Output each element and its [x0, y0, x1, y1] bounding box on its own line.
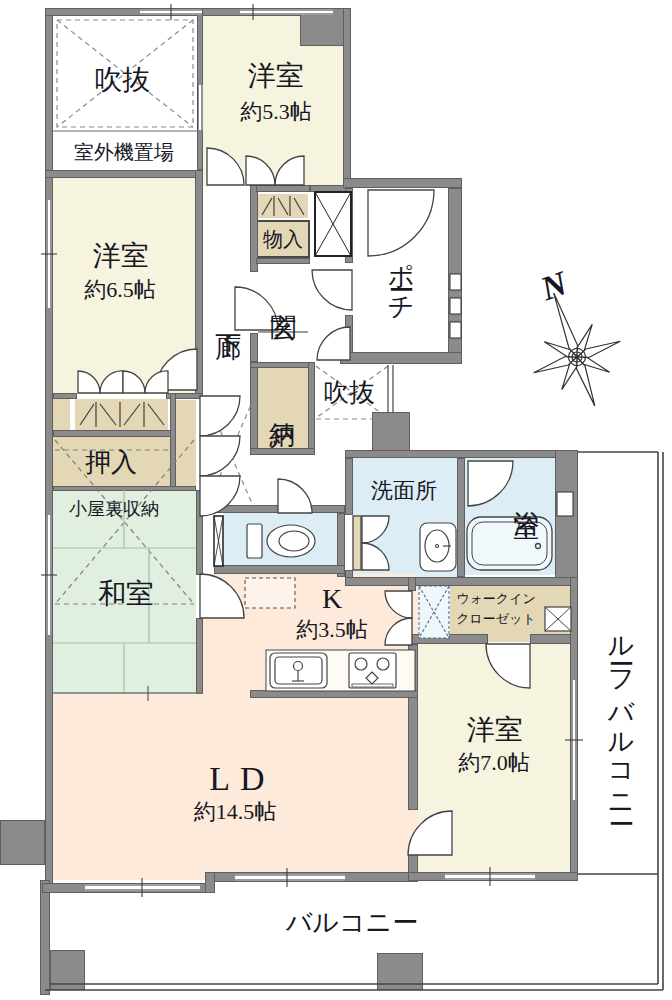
room-toilet	[223, 513, 337, 565]
room-size-western-5-3: 約5.3帖	[240, 100, 312, 123]
compass-north-label: N	[536, 265, 571, 307]
wall-pillar	[50, 950, 85, 990]
compass-icon	[506, 276, 643, 424]
wall	[197, 8, 203, 170]
floor-plan: 吹抜 室外機置場 洋室 約5.3帖 洋室 約6.5帖 廊下 物入 玄関 ポーチ …	[0, 0, 672, 1000]
room-storeroom-nando	[258, 368, 308, 448]
wall-pillar	[372, 412, 410, 452]
wall	[448, 188, 462, 362]
wall	[343, 8, 351, 188]
laundry-space-icon	[419, 586, 449, 638]
room-size-kitchen: 約3.5帖	[296, 618, 368, 641]
wall	[408, 577, 416, 591]
room-size-living-dining: 約14.5帖	[194, 800, 277, 823]
wall	[42, 883, 210, 893]
room-bathroom	[465, 458, 555, 575]
wall	[345, 458, 353, 515]
wall	[340, 352, 462, 364]
wall	[170, 393, 176, 487]
wall	[343, 178, 462, 188]
room-label-corridor: 廊下	[214, 312, 241, 316]
room-label-wic-line2: クローゼット	[456, 612, 536, 626]
wall	[45, 170, 200, 178]
wall	[205, 872, 418, 882]
room-washroom	[353, 458, 457, 577]
wall	[555, 450, 578, 585]
closet-box-small	[53, 398, 70, 430]
room-label-western-6-5: 洋室	[93, 241, 149, 270]
wall	[196, 490, 203, 575]
wall	[345, 577, 578, 586]
wall	[256, 258, 310, 264]
room-label-japanese: 和室	[98, 579, 154, 608]
room-label-western-7-0: 洋室	[467, 715, 523, 744]
room-label-void-mid: 吹抜	[323, 379, 375, 406]
wall-pillar	[377, 953, 423, 990]
wall	[195, 170, 203, 395]
closet-hatch-strip	[75, 399, 168, 430]
wall	[250, 362, 315, 368]
wall	[570, 577, 578, 880]
room-label-roof-balcony: ルーフバルコニー	[607, 618, 634, 812]
room-label-bathroom: 浴室	[512, 490, 539, 494]
wall	[308, 362, 315, 452]
wall	[205, 872, 215, 893]
wall	[53, 430, 175, 437]
wall	[214, 565, 345, 574]
room-label-wic-line1: ウォークイン	[456, 592, 536, 606]
closet-strip-right	[176, 400, 196, 488]
closet-hatch-top	[258, 194, 308, 218]
wall	[250, 333, 258, 362]
wall-pillar	[0, 820, 45, 865]
room-label-washroom: 洗面所	[371, 479, 437, 502]
room-label-entrance: 玄関	[269, 293, 296, 297]
room-label-oshiire: 押入	[85, 449, 137, 476]
wall	[408, 644, 418, 810]
wall	[345, 188, 353, 263]
wall	[250, 362, 258, 452]
wall	[53, 393, 77, 399]
room-label-porch: ポーチ	[387, 244, 414, 309]
wall	[457, 458, 465, 577]
wall	[250, 448, 315, 455]
wall	[408, 634, 488, 644]
room-label-living-dining: LD	[199, 761, 274, 797]
room-label-storeroom: 納戸	[268, 402, 295, 406]
room-size-western-6-5: 約6.5帖	[84, 278, 156, 301]
wall	[250, 690, 418, 698]
wall	[53, 486, 196, 491]
wall	[214, 505, 345, 513]
room-label-void-top: 吹抜	[94, 65, 150, 94]
room-size-western-7-0: 約7.0帖	[458, 751, 530, 774]
wall	[40, 880, 50, 995]
wall	[345, 450, 578, 458]
room-label-outdoor-unit: 室外機置場	[74, 142, 174, 163]
wall	[256, 185, 310, 192]
wall	[196, 618, 203, 694]
room-label-monoire: 物入	[263, 229, 303, 250]
room-label-kitchen: K	[322, 584, 342, 613]
room-label-balcony: バルコニー	[286, 909, 418, 936]
wall-notch	[300, 8, 344, 46]
wall	[45, 8, 53, 890]
wall	[408, 872, 578, 881]
room-label-western-5-3: 洋室	[248, 61, 304, 90]
room-label-attic-storage: 小屋裏収納	[69, 500, 159, 519]
